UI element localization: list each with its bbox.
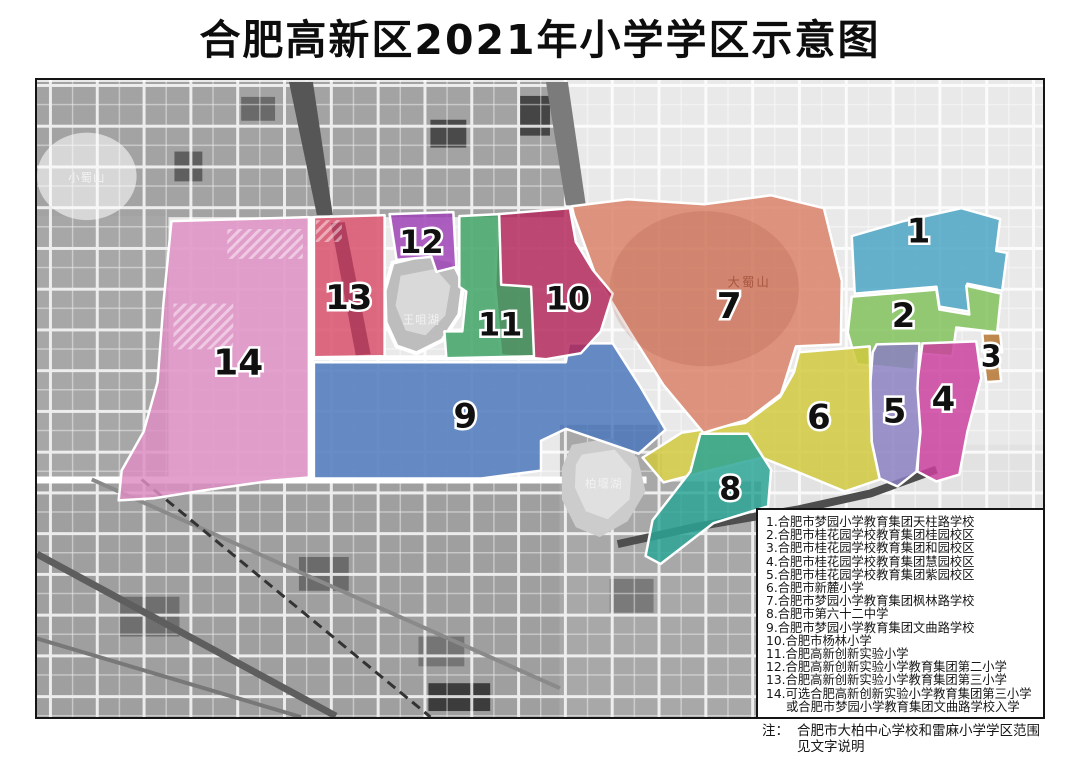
- map-note: 注： 合肥市大柏中心学校和雷麻小学学区范围 见文字说明: [762, 723, 1040, 755]
- page: 合肥高新区2021年小学学区示意图: [0, 0, 1080, 763]
- district-number-13: 13: [325, 278, 372, 317]
- district-number-14: 14: [213, 343, 263, 384]
- district-number-5: 5: [883, 391, 907, 430]
- hatch-area: [316, 220, 342, 242]
- legend-list: 1.合肥市梦园小学教育集团天柱路学校2.合肥市桂花园学校教育集团桂园校区3.合肥…: [766, 516, 1037, 714]
- legend-item: 8.合肥市第六十二中学: [766, 608, 1037, 621]
- legend-box: 1.合肥市梦园小学教育集团天柱路学校2.合肥市桂花园学校教育集团桂园校区3.合肥…: [756, 508, 1045, 719]
- district-number-4: 4: [932, 380, 956, 419]
- district-number-11: 11: [478, 305, 522, 343]
- legend-item: 3.合肥市桂花园学校教育集团和园校区: [766, 542, 1037, 555]
- district-number-12: 12: [399, 223, 443, 261]
- legend-item: 13.合肥高新创新实验小学教育集团第三小学: [766, 674, 1037, 687]
- district-number-8: 8: [719, 469, 741, 507]
- legend-item: 或合肥市梦园小学教育集团文曲路学校入学: [766, 701, 1037, 714]
- legend-item: 14.可选合肥高新创新实验小学教育集团第三小学: [766, 688, 1037, 701]
- legend-item: 4.合肥市桂花园学校教育集团慧园校区: [766, 556, 1037, 569]
- district-number-10: 10: [546, 280, 590, 318]
- note-prefix: 注：: [762, 723, 789, 755]
- wangzuihu-label: 王咀湖: [403, 312, 440, 326]
- baiyanhu-label: 柏堰湖: [585, 476, 622, 490]
- page-title: 合肥高新区2021年小学学区示意图: [0, 6, 1080, 66]
- xiaoshushan-label: 小蜀山: [68, 170, 105, 184]
- note-text: 合肥市大柏中心学校和雷麻小学学区范围 见文字说明: [797, 723, 1040, 755]
- district-number-3: 3: [981, 340, 1002, 375]
- district-number-7: 7: [717, 286, 742, 327]
- legend-item: 9.合肥市梦园小学教育集团文曲路学校: [766, 622, 1037, 635]
- district-number-2: 2: [892, 296, 916, 335]
- district-number-1: 1: [907, 212, 931, 251]
- district-number-9: 9: [454, 396, 478, 435]
- district-number-6: 6: [807, 397, 831, 436]
- hatch-area: [227, 229, 303, 259]
